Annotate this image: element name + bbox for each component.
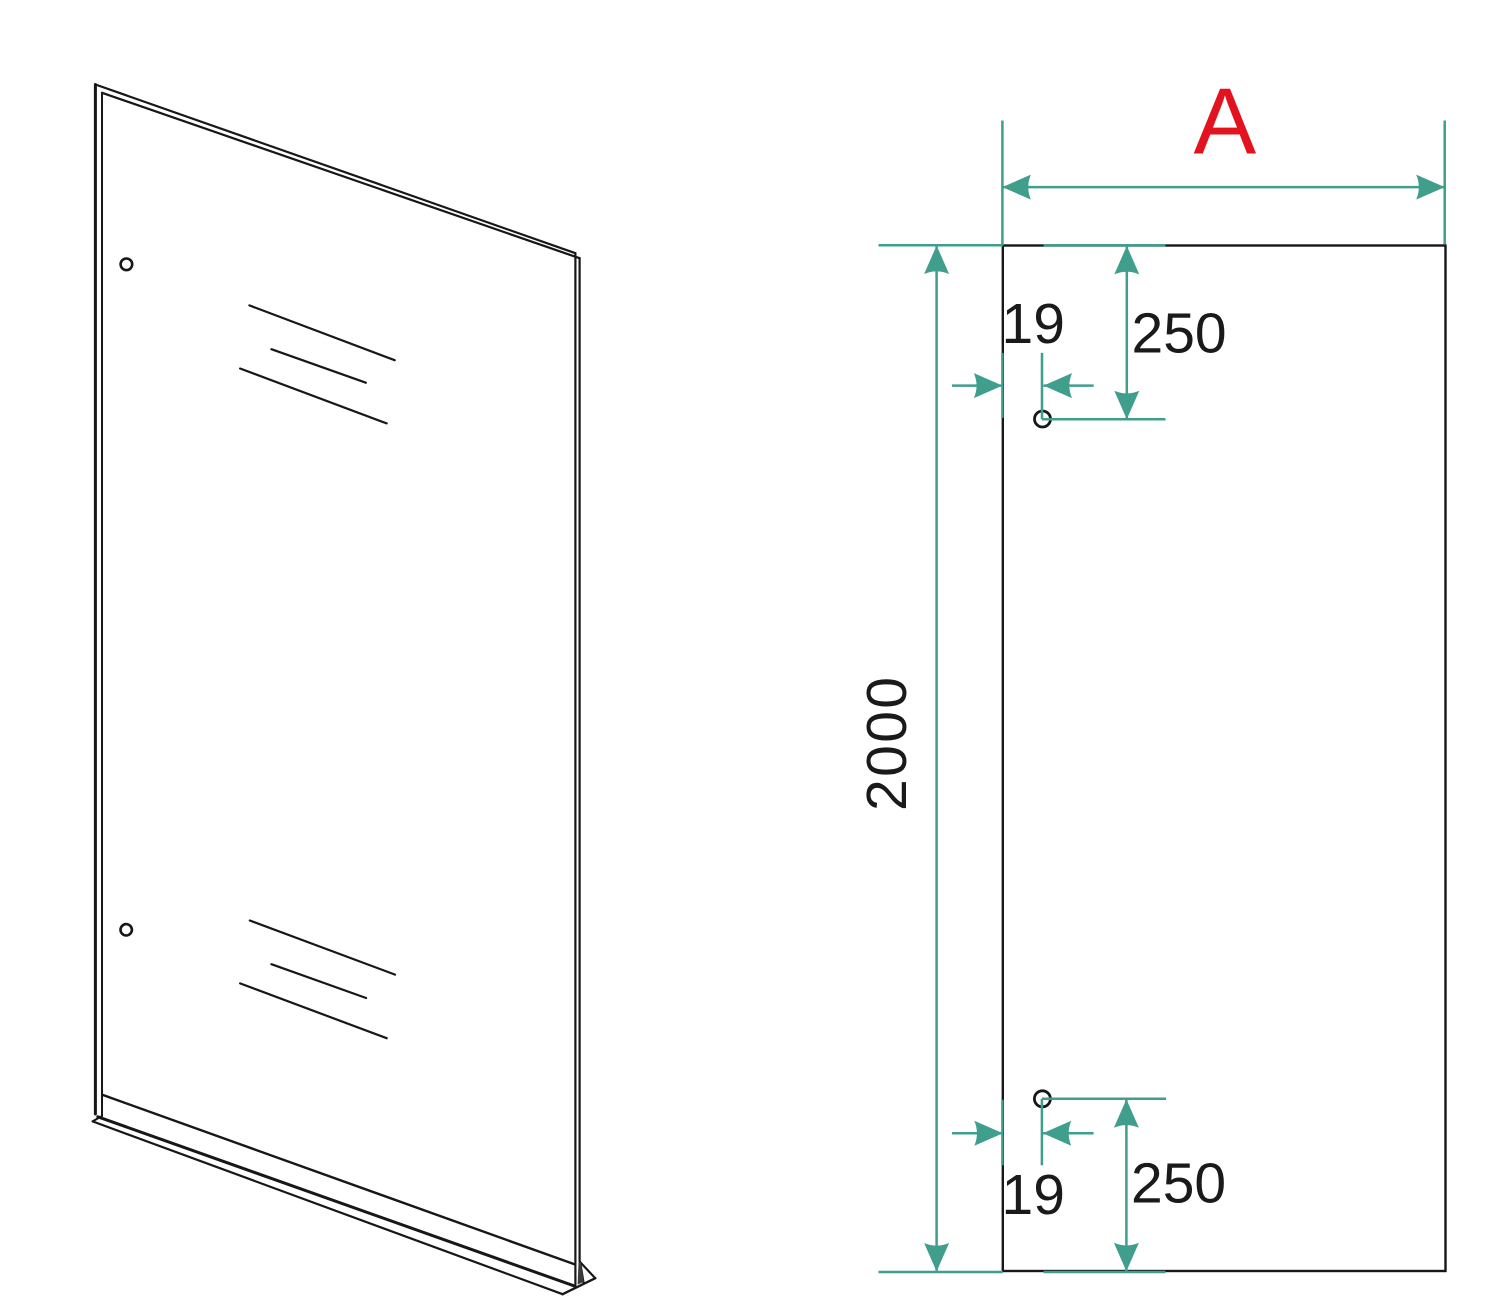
svg-text:19: 19 <box>1002 1163 1065 1227</box>
svg-text:A: A <box>1194 68 1257 173</box>
svg-text:2000: 2000 <box>855 675 919 811</box>
svg-text:250: 250 <box>1131 1152 1226 1216</box>
svg-text:250: 250 <box>1132 302 1227 366</box>
svg-text:19: 19 <box>1002 292 1065 356</box>
